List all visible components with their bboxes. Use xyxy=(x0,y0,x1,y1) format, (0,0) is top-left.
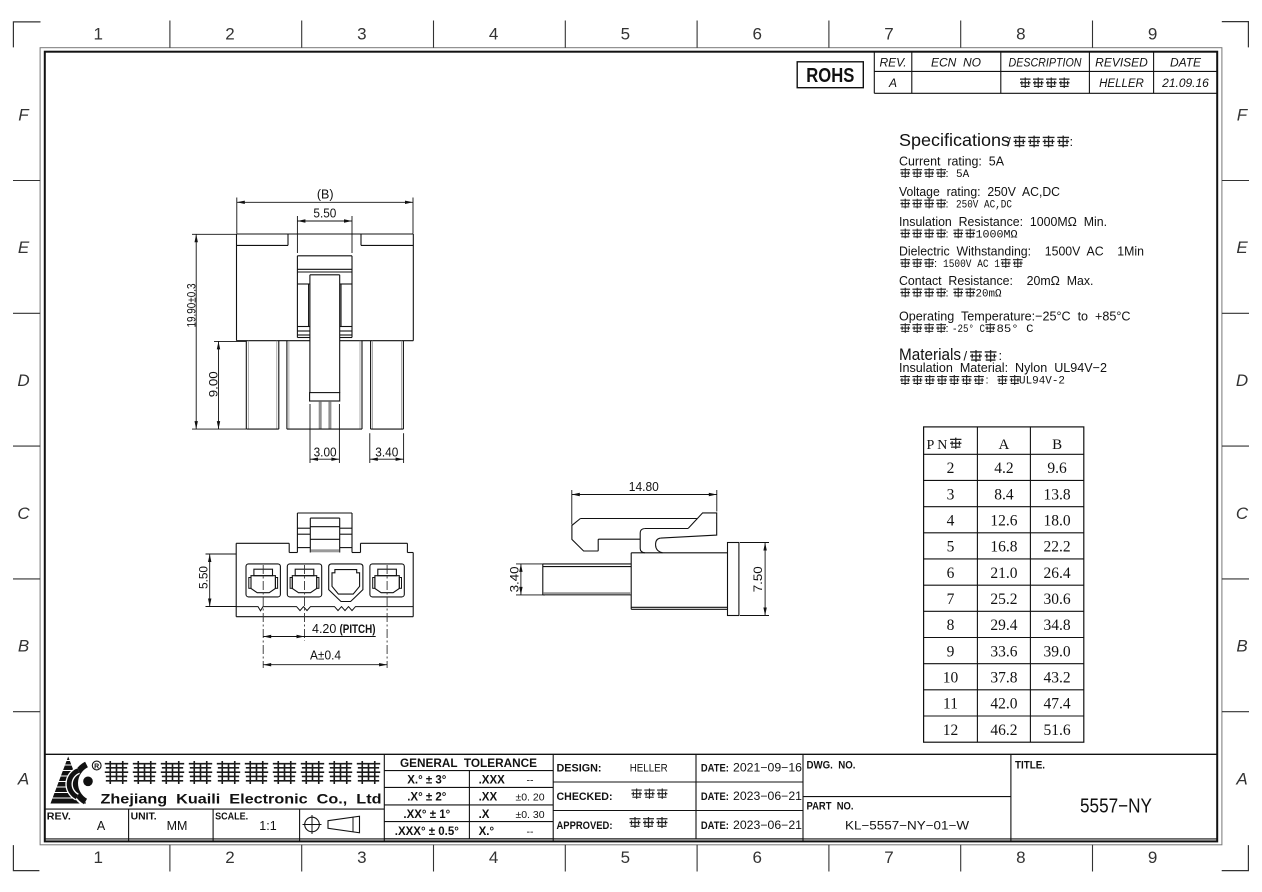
svg-text:UNIT.: UNIT. xyxy=(131,810,157,822)
svg-text:13.8: 13.8 xyxy=(1044,486,1071,503)
svg-text:REV.: REV. xyxy=(47,810,71,822)
svg-text:CHECKED:: CHECKED: xyxy=(557,791,613,803)
svg-text::: : xyxy=(946,198,949,210)
svg-text:5A: 5A xyxy=(956,169,970,181)
svg-text:3: 3 xyxy=(357,25,366,44)
svg-text:7: 7 xyxy=(884,25,893,44)
svg-text:TITLE.: TITLE. xyxy=(1015,760,1045,772)
svg-text:1: 1 xyxy=(93,25,102,44)
svg-text:.XX° ± 1°: .XX° ± 1° xyxy=(403,809,450,821)
svg-text:C: C xyxy=(17,504,30,523)
svg-text:6: 6 xyxy=(752,848,761,867)
svg-text:3.40: 3.40 xyxy=(507,566,521,592)
svg-text:9: 9 xyxy=(1148,848,1157,867)
svg-text:KL−5557−NY−01−W: KL−5557−NY−01−W xyxy=(845,819,970,833)
svg-text:25.2: 25.2 xyxy=(990,591,1017,608)
svg-text:43.2: 43.2 xyxy=(1044,669,1071,686)
svg-text:B: B xyxy=(18,637,29,656)
svg-text:APPROVED:: APPROVED: xyxy=(557,820,613,832)
svg-text:30.6: 30.6 xyxy=(1044,591,1071,608)
svg-text:A±0.4: A±0.4 xyxy=(310,649,341,663)
svg-text:7.50: 7.50 xyxy=(751,566,765,592)
svg-text:33.6: 33.6 xyxy=(990,643,1017,660)
svg-text:GENERAL TOLERANCE: GENERAL TOLERANCE xyxy=(400,756,537,770)
svg-text:A: A xyxy=(888,76,897,90)
svg-text:/: / xyxy=(1007,135,1011,150)
svg-text:(PITCH): (PITCH) xyxy=(340,622,376,636)
svg-text:2021−09−16: 2021−09−16 xyxy=(733,763,802,775)
svg-text:47.4: 47.4 xyxy=(1044,696,1071,713)
svg-text:42.0: 42.0 xyxy=(990,696,1017,713)
svg-text:HELLER: HELLER xyxy=(630,763,668,775)
svg-text:HELLER: HELLER xyxy=(1099,78,1144,90)
svg-text:4: 4 xyxy=(947,512,955,529)
svg-text:B: B xyxy=(1236,637,1247,656)
svg-text:DWG. NO.: DWG. NO. xyxy=(807,760,856,772)
svg-text:D: D xyxy=(17,371,29,390)
svg-text:Specifications: Specifications xyxy=(899,130,1010,150)
svg-text:2: 2 xyxy=(225,848,234,867)
svg-text:7: 7 xyxy=(884,848,893,867)
svg-text:5.50: 5.50 xyxy=(197,566,211,589)
svg-text::: : xyxy=(946,168,949,180)
svg-text:A: A xyxy=(97,819,106,833)
svg-text:12.6: 12.6 xyxy=(990,512,1017,529)
svg-text:A: A xyxy=(998,437,1009,453)
svg-text:R: R xyxy=(94,763,99,770)
svg-text:10: 10 xyxy=(943,669,959,686)
svg-text:12: 12 xyxy=(943,722,959,739)
svg-text:18.0: 18.0 xyxy=(1044,512,1071,529)
svg-text:4.20: 4.20 xyxy=(312,622,340,636)
svg-text:29.4: 29.4 xyxy=(990,617,1017,634)
svg-text:Operating Temperature:−25°C: Operating Temperature:−25°C to +85°C xyxy=(899,308,1131,323)
svg-text:14.80: 14.80 xyxy=(629,480,659,494)
svg-text:.XX: .XX xyxy=(479,792,498,804)
svg-text:.X° ± 2°: .X° ± 2° xyxy=(407,792,447,804)
svg-text::: : xyxy=(946,323,949,335)
svg-text:±0. 30: ±0. 30 xyxy=(515,809,544,821)
svg-text:11: 11 xyxy=(943,696,958,713)
svg-text:16.8: 16.8 xyxy=(990,539,1017,556)
svg-text:Contact Resistance: 20mΩ: Contact Resistance: 20mΩ Max. xyxy=(899,273,1094,288)
svg-text:B: B xyxy=(1052,437,1062,453)
svg-text:(B): (B) xyxy=(317,187,334,201)
svg-text:3.40: 3.40 xyxy=(375,446,398,460)
svg-text:8: 8 xyxy=(947,617,955,634)
svg-text:5: 5 xyxy=(621,848,630,867)
svg-text:21.09.16: 21.09.16 xyxy=(1161,76,1209,90)
svg-text::: : xyxy=(946,287,949,299)
svg-text:-25° C: -25° C xyxy=(952,324,985,336)
svg-text:46.2: 46.2 xyxy=(990,722,1017,739)
svg-text:51.6: 51.6 xyxy=(1044,722,1071,739)
svg-text:7: 7 xyxy=(947,591,955,608)
svg-text::: : xyxy=(986,375,989,387)
svg-text:85° C: 85° C xyxy=(997,324,1034,336)
svg-text:2: 2 xyxy=(947,460,955,477)
svg-text:20mΩ: 20mΩ xyxy=(976,288,1002,300)
svg-text:5: 5 xyxy=(621,25,630,44)
svg-text:DESCRIPTION: DESCRIPTION xyxy=(1009,56,1082,70)
svg-text:E: E xyxy=(1236,238,1248,257)
svg-text::: : xyxy=(1070,134,1074,149)
svg-text:37.8: 37.8 xyxy=(990,669,1017,686)
svg-text:.XXX° ± 0.5°: .XXX° ± 0.5° xyxy=(395,826,459,838)
svg-text:X.°: X.° xyxy=(479,826,495,838)
svg-text:250V AC,DC: 250V AC,DC xyxy=(956,199,1012,211)
svg-text:Insulation Material: Nylon: Insulation Material: Nylon UL94V−2 xyxy=(899,360,1107,375)
svg-text:REVISED: REVISED xyxy=(1095,56,1148,70)
svg-text:DATE:: DATE: xyxy=(701,791,729,803)
svg-text:UL94V-2: UL94V-2 xyxy=(1019,376,1065,388)
svg-text:34.8: 34.8 xyxy=(1044,617,1071,634)
svg-text:6: 6 xyxy=(947,565,955,582)
svg-text:4: 4 xyxy=(489,25,498,44)
svg-text:21.0: 21.0 xyxy=(990,565,1017,582)
svg-text:C: C xyxy=(1236,504,1249,523)
svg-text:F: F xyxy=(18,105,30,124)
svg-text:DATE: DATE xyxy=(1170,56,1202,70)
svg-text:DATE:: DATE: xyxy=(701,820,729,832)
svg-text:6: 6 xyxy=(752,25,761,44)
svg-text:8.4: 8.4 xyxy=(994,486,1014,503)
svg-text:8: 8 xyxy=(1016,848,1025,867)
svg-text:26.4: 26.4 xyxy=(1044,565,1071,582)
svg-text:ECN NO: ECN NO xyxy=(931,56,981,70)
svg-text:Voltage rating: 250V AC,DC: Voltage rating: 250V AC,DC xyxy=(899,184,1060,199)
svg-text:4: 4 xyxy=(489,848,498,867)
svg-text:Insulation Resistance: 1000M: Insulation Resistance: 1000MΩ Min. xyxy=(899,214,1107,229)
svg-text:4.2: 4.2 xyxy=(994,460,1013,477)
svg-text:9: 9 xyxy=(1148,25,1157,44)
svg-text:Dielectric Withstanding: 1: Dielectric Withstanding: 1500V AC 1Min xyxy=(899,243,1144,258)
svg-text:SCALE.: SCALE. xyxy=(215,810,248,822)
svg-text:1000MΩ: 1000MΩ xyxy=(976,229,1018,241)
svg-text:REV.: REV. xyxy=(879,56,906,70)
svg-text:8: 8 xyxy=(1016,25,1025,44)
svg-text:3: 3 xyxy=(357,848,366,867)
svg-text:2: 2 xyxy=(225,25,234,44)
svg-text:39.0: 39.0 xyxy=(1044,643,1071,660)
svg-text:3: 3 xyxy=(947,486,955,503)
svg-text:9.6: 9.6 xyxy=(1047,460,1067,477)
svg-text:1: 1 xyxy=(93,848,102,867)
svg-text:1:1: 1:1 xyxy=(259,819,276,833)
svg-text::: : xyxy=(946,228,949,240)
svg-text:--: -- xyxy=(527,826,534,838)
svg-text:A: A xyxy=(17,769,29,788)
svg-text:Zhejiang Kuaili Electronic: Zhejiang Kuaili Electronic Co., Ltd xyxy=(101,792,382,807)
svg-text:E: E xyxy=(18,238,30,257)
svg-text:MM: MM xyxy=(167,819,188,833)
svg-text:±0. 20: ±0. 20 xyxy=(515,792,544,804)
svg-text::: : xyxy=(934,258,937,270)
svg-text:F: F xyxy=(1237,105,1249,124)
svg-text:.X: .X xyxy=(479,809,490,821)
svg-text:2023−06−21: 2023−06−21 xyxy=(733,791,802,803)
svg-text:Current rating: 5A: Current rating: 5A xyxy=(899,153,1004,168)
svg-text:PART NO.: PART NO. xyxy=(807,801,854,813)
svg-text:ROHS: ROHS xyxy=(806,65,854,87)
svg-text:--: -- xyxy=(527,774,534,786)
svg-text:2023−06−21: 2023−06−21 xyxy=(733,820,802,832)
svg-text:19.90±0.3: 19.90±0.3 xyxy=(184,283,198,327)
svg-text:9.00: 9.00 xyxy=(207,371,221,397)
svg-text:DESIGN:: DESIGN: xyxy=(557,763,602,775)
svg-text:9: 9 xyxy=(947,643,955,660)
svg-text:D: D xyxy=(1236,371,1248,390)
svg-text:A: A xyxy=(1235,769,1247,788)
svg-text:22.2: 22.2 xyxy=(1044,539,1071,556)
svg-text:3.00: 3.00 xyxy=(314,446,337,460)
svg-text:P N: P N xyxy=(927,438,948,453)
svg-text:5.50: 5.50 xyxy=(313,207,336,221)
svg-text:.XXX: .XXX xyxy=(479,774,506,786)
svg-text:X.° ± 3°: X.° ± 3° xyxy=(407,774,447,786)
svg-text:1500V AC 1: 1500V AC 1 xyxy=(943,259,1000,271)
svg-text:5: 5 xyxy=(947,539,955,556)
svg-text:DATE:: DATE: xyxy=(701,763,729,775)
svg-text:5557−NY: 5557−NY xyxy=(1080,796,1152,818)
